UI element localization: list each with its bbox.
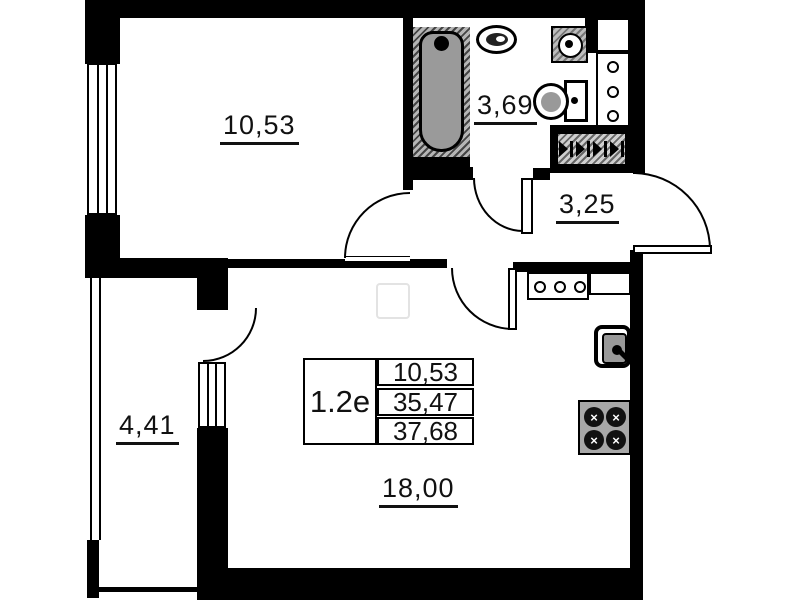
stove-burner-icon: ×: [606, 430, 626, 450]
vent-grille-icon: [550, 125, 633, 173]
window-mullion: [215, 364, 217, 426]
living-door-arc: [451, 268, 513, 330]
wall-bedroom-south-left: [120, 258, 228, 278]
stove-icon: × × × ×: [578, 400, 631, 455]
stove-burner-icon: ×: [584, 407, 604, 427]
kitchen-counter: [527, 272, 589, 300]
bedroom-door-arc: [344, 192, 410, 258]
hallway-area-label: 3,25: [556, 189, 619, 224]
vent-arrow-icon: [559, 141, 573, 157]
entrance-door-arc: [633, 172, 711, 250]
toilet-bowl-icon: [533, 83, 569, 120]
bedroom-window: [87, 63, 117, 215]
counter-hob-icon: [554, 281, 566, 293]
wall-balcony-divider: [197, 428, 228, 600]
unit-area-row: 35,47: [377, 388, 474, 416]
floor-plan: × × × × 10,53 3,69 3,25 4,41 18,00 1.2e …: [0, 0, 799, 600]
counter-hob-icon: [534, 281, 546, 293]
window-mullion: [207, 364, 209, 426]
wall-bath-south-left: [412, 167, 473, 180]
unit-area-row: 10,53: [377, 358, 474, 386]
wall-living-north: [513, 262, 630, 272]
wall-top: [85, 0, 645, 18]
wall-bedroom-bath-divider: [403, 18, 413, 190]
unit-id-cell: 1.2e: [303, 358, 377, 445]
bathroom-area-label: 3,69: [474, 90, 537, 125]
cabinet-knob-icon: [607, 61, 619, 73]
balcony-area-label: 4,41: [116, 410, 179, 445]
wall-balcony-door-step: [197, 278, 228, 310]
wall-bottom: [213, 568, 643, 600]
wall-right-main: [630, 272, 643, 600]
wall-pillar-top-left: [85, 18, 120, 64]
wall-balcony-left-thin: [90, 278, 101, 540]
living-door-leaf: [508, 268, 517, 330]
stove-burner-icon: ×: [584, 430, 604, 450]
bathroom-door-arc: [473, 178, 523, 232]
washbasin-icon: [476, 25, 517, 54]
bath-cabinet: [596, 52, 630, 128]
cabinet-knob-icon: [607, 86, 619, 98]
wall-pillar-left-mid: [85, 215, 120, 278]
bathtub-drain-icon: [434, 36, 449, 51]
balcony-door-arc: [203, 308, 257, 362]
balcony-window: [198, 362, 226, 428]
stove-burner-icon: ×: [606, 407, 626, 427]
unit-area-row: 37,68: [377, 417, 474, 445]
living-area-label: 18,00: [379, 473, 458, 508]
washing-machine-icon: [551, 26, 588, 63]
counter-hob-icon: [574, 281, 586, 293]
wall-balcony-bottom-line: [98, 587, 197, 592]
window-mullion: [97, 65, 99, 213]
vent-arrow-icon: [610, 141, 624, 157]
faded-symbol: [376, 283, 410, 319]
wall-bath-south-right: [533, 168, 550, 180]
duct-shaft: [595, 17, 631, 53]
entrance-door-leaf: [633, 245, 712, 254]
bedroom-area-label: 10,53: [220, 110, 299, 145]
vent-arrow-icon: [593, 141, 607, 157]
window-mullion: [106, 65, 108, 213]
vent-arrow-icon: [576, 141, 590, 157]
cabinet-knob-icon: [607, 110, 619, 122]
kitchen-counter-end: [589, 272, 631, 295]
kitchen-sink-icon: [594, 325, 631, 368]
wall-bedroom-south-right: [228, 259, 447, 268]
bathroom-door-leaf: [521, 178, 533, 234]
